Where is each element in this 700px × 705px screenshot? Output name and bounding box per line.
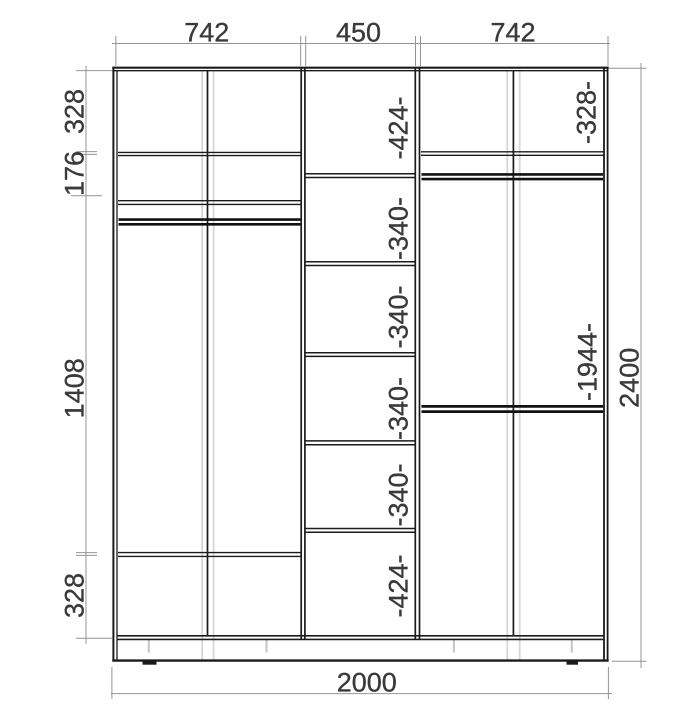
svg-text:1408: 1408 <box>60 358 90 418</box>
svg-text:450: 450 <box>336 18 381 48</box>
svg-text:-340-: -340- <box>384 285 414 348</box>
svg-text:176: 176 <box>60 151 90 196</box>
svg-text:328: 328 <box>60 89 90 134</box>
svg-text:-328-: -328- <box>572 81 602 144</box>
svg-text:-424-: -424- <box>384 554 414 617</box>
svg-text:742: 742 <box>490 18 535 48</box>
svg-text:-340-: -340- <box>384 377 414 440</box>
svg-text:328: 328 <box>60 573 90 618</box>
svg-text:-340-: -340- <box>384 197 414 260</box>
svg-text:-424-: -424- <box>384 96 414 159</box>
svg-text:2000: 2000 <box>337 667 397 697</box>
svg-text:2400: 2400 <box>615 348 645 408</box>
svg-text:-1944-: -1944- <box>573 323 603 401</box>
svg-text:-340-: -340- <box>384 463 414 526</box>
svg-text:742: 742 <box>184 18 229 48</box>
